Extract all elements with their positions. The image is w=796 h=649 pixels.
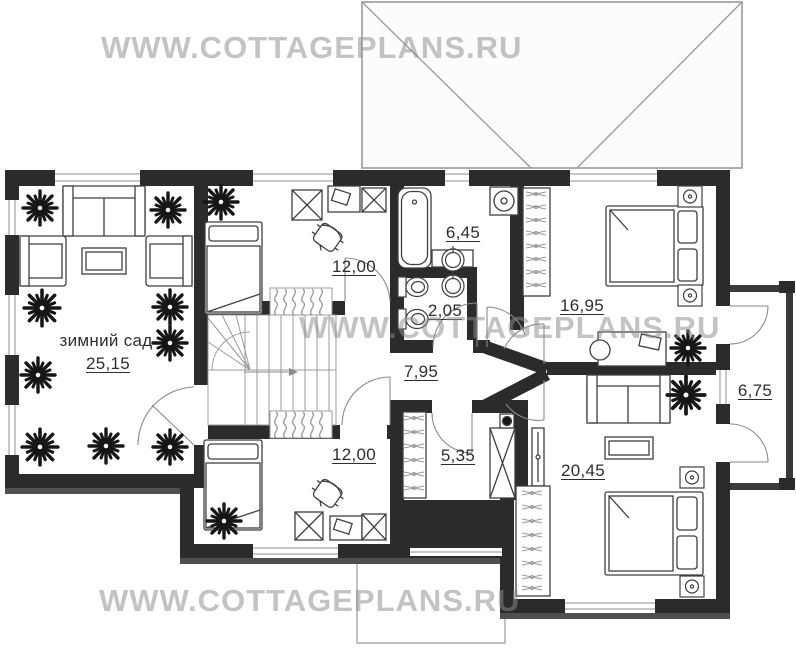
furniture <box>20 185 705 597</box>
wardrobe-icon <box>516 486 550 596</box>
door-bedroom-bottom <box>340 377 390 439</box>
bed-icon <box>606 206 703 286</box>
cabinet-icon <box>362 514 386 540</box>
mirror-icon <box>532 428 544 486</box>
washing-machine-icon <box>490 187 518 215</box>
chair-icon <box>306 219 347 258</box>
desk-icon <box>330 516 362 540</box>
nightstand-icon <box>680 467 704 488</box>
toilet-icon <box>398 277 428 297</box>
bed-icon <box>205 222 262 314</box>
door-balcony-bottom <box>716 424 768 462</box>
watermark-top: WWW.COTTAGEPLANS.RU <box>101 30 522 66</box>
bathtub-icon <box>398 188 431 268</box>
nightstand-icon <box>680 576 704 597</box>
cabinet-icon <box>490 414 515 498</box>
room-area-wardrobe: 5,35 <box>441 446 475 466</box>
door-balcony-top <box>716 306 768 344</box>
coffee-table-icon <box>82 248 126 274</box>
wardrobe-icon <box>403 412 426 498</box>
room-area-winter-garden: 25,15 <box>86 354 130 374</box>
room-area-hall: 7,95 <box>404 362 438 382</box>
room-label-winter-garden: зимний сад <box>60 331 153 351</box>
chair-icon <box>306 475 347 514</box>
plant-icon <box>204 185 238 219</box>
cabinet-icon <box>362 188 386 212</box>
floor-plan: зимний сад 25,15 12,00 6,45 2,05 16,95 7… <box>0 0 796 649</box>
cabinet-icon <box>292 190 322 220</box>
room-area-bedroom-bottom: 12,00 <box>332 445 376 465</box>
armchair-icon <box>146 236 192 286</box>
wardrobe-icon <box>523 188 550 296</box>
room-area-balcony: 6,75 <box>738 381 772 401</box>
coffee-table-icon <box>605 437 653 459</box>
room-area-bedroom-right-bottom: 20,45 <box>561 461 605 481</box>
nightstand-icon <box>678 285 702 306</box>
desk-icon <box>328 186 360 212</box>
watermark-bottom: WWW.COTTAGEPLANS.RU <box>99 583 520 619</box>
watermark-middle: WWW.COTTAGEPLANS.RU <box>299 310 720 346</box>
room-area-bathroom: 6,45 <box>446 223 480 243</box>
roof-top-outline <box>362 2 742 168</box>
sofa-icon <box>587 375 670 423</box>
vestibule-diagonal-walls <box>485 347 547 406</box>
cabinet-icon <box>295 512 323 540</box>
room-area-bedroom-top: 12,00 <box>332 257 376 277</box>
nightstand-icon <box>678 186 702 207</box>
plant-icon <box>207 504 241 538</box>
bed-icon <box>605 492 703 575</box>
plant-icon <box>667 376 704 413</box>
sofa-icon <box>63 186 145 236</box>
armchair-icon <box>20 236 66 286</box>
